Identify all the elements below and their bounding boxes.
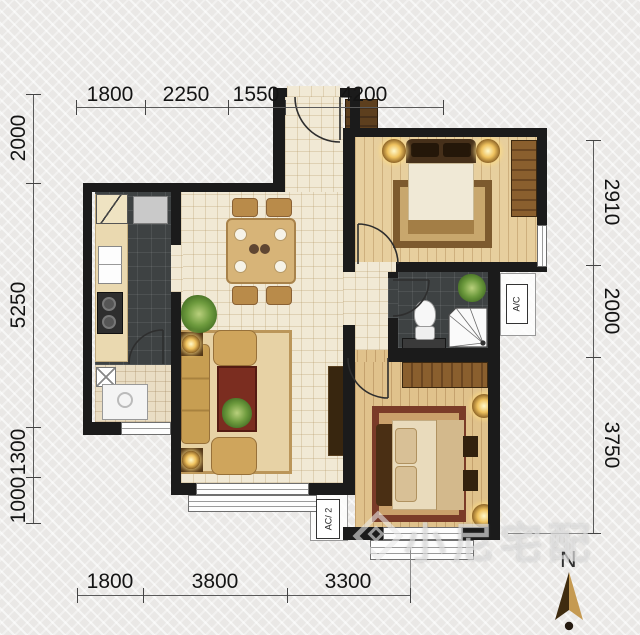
dim-top-4: 4200 <box>324 84 404 106</box>
dim-extension <box>410 547 411 593</box>
dim-bottom-2: 3800 <box>175 571 255 593</box>
bathroom-door <box>393 280 429 316</box>
dim-tick <box>586 265 601 266</box>
dim-tick <box>586 140 601 141</box>
dim-tick <box>410 588 411 603</box>
dim-top-3: 1550 <box>216 84 296 106</box>
dim-left-4: 1000 <box>8 460 30 540</box>
dim-left-1: 2000 <box>8 98 30 178</box>
bedroom-north-door <box>358 224 398 264</box>
dim-line-top <box>76 107 444 108</box>
dim-extension <box>508 533 588 534</box>
dim-tick <box>287 588 288 603</box>
compass-north-label: N <box>560 546 577 573</box>
dim-line-right <box>593 140 594 533</box>
dim-tick <box>586 533 601 534</box>
dim-right-2: 2000 <box>600 271 622 351</box>
compass-arrow <box>552 572 586 632</box>
dim-tick <box>26 94 41 95</box>
shower-head <box>480 340 485 345</box>
dim-bottom-3: 3300 <box>308 571 388 593</box>
dim-right-3: 3750 <box>600 405 622 485</box>
dim-left-2: 5250 <box>8 265 30 345</box>
dim-line-left <box>33 94 34 524</box>
dim-tick <box>26 183 41 184</box>
dim-bottom-1: 1800 <box>70 571 150 593</box>
dim-top-1: 1800 <box>70 84 150 106</box>
dim-tick <box>443 100 444 115</box>
master-door <box>348 358 388 398</box>
kitchen-door <box>129 330 163 364</box>
dim-top-2: 2250 <box>146 84 226 106</box>
dim-tick <box>586 357 601 358</box>
dim-line-bottom <box>77 595 411 596</box>
dim-right-1: 2910 <box>600 162 622 242</box>
